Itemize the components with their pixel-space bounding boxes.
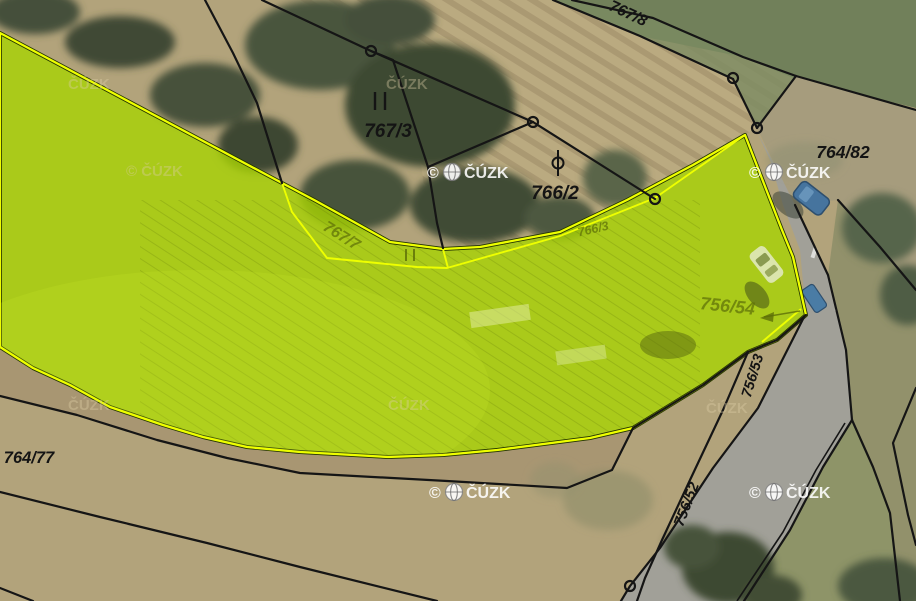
cuzk-text: ČÚZK [464,163,509,182]
cuzk-watermark-faint: ČÚZK [68,75,110,93]
copyright-symbol: © [749,165,761,182]
cuzk-text: ČÚZK [786,483,831,502]
cuzk-text: ČÚZK [466,483,511,502]
copyright-symbol: © [429,485,441,502]
cuzk-watermark-faint: ČÚZK [68,396,110,414]
cuzk-text: ČÚZK [786,163,831,182]
cuzk-watermark-faint: ČÚZK [706,399,748,417]
cadastral-map[interactable]: 767/8 767/3 766/2 764/82 764/77 756/53 7… [0,0,916,601]
copyright-symbol: © [427,165,439,182]
parcel-label-764-77: 764/77 [4,449,55,467]
copyright-symbol: © [749,485,761,502]
map-viewport[interactable]: 767/8 767/3 766/2 764/82 764/77 756/53 7… [0,0,916,601]
cuzk-watermark-faint: © ČÚZK [126,162,183,180]
parcel-label-764-82: 764/82 [816,142,870,162]
cuzk-watermark-faint: ČÚZK [386,75,428,93]
parcel-label-766-2: 766/2 [531,183,579,204]
bush-shadow-through-overlay [640,331,696,359]
parcel-label-767-3: 767/3 [364,121,412,142]
cuzk-watermark-faint: ČÚZK [388,396,430,414]
